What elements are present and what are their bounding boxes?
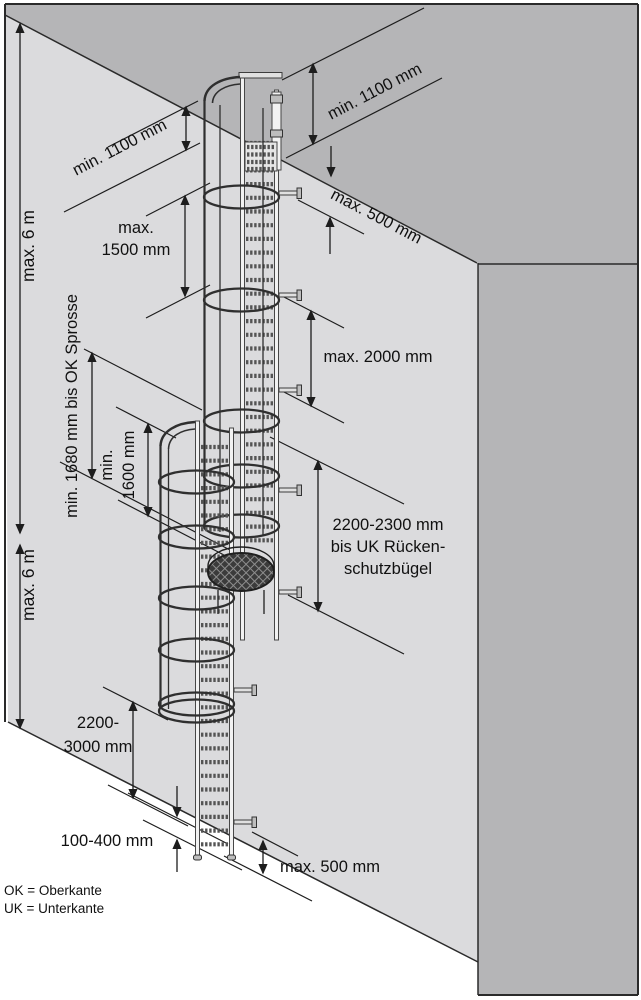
- label-exit-height-line2: 3000 mm: [64, 738, 133, 756]
- label-min1680: min. 1680 mm bis OK Sprosse: [63, 294, 81, 518]
- label-max500-bottom: max. 500 mm: [280, 858, 380, 876]
- label-max1500-line2: 1500 mm: [102, 241, 171, 259]
- walkthrough-cap: [239, 73, 282, 79]
- legend-uk: UK = Unterkante: [4, 901, 104, 916]
- label-max2000: max. 2000 mm: [323, 348, 432, 366]
- stile-foot: [228, 855, 236, 860]
- legend: OK = Oberkante UK = Unterkante: [4, 883, 104, 916]
- label-min1600-line1: min.: [98, 449, 116, 480]
- roof-exit-grate: [245, 142, 277, 171]
- label-max6-lower: max. 6 m: [18, 549, 38, 621]
- ladder-stile-right: [275, 90, 279, 640]
- label-min1600-line2: 1600 mm: [120, 431, 138, 500]
- diagram-canvas: max. 6 m max. 6 m min. 1100 mm min. 1100…: [0, 0, 641, 1000]
- label-max6-upper: max. 6 m: [18, 210, 38, 282]
- label-ground-gap: 100-400 mm: [61, 832, 154, 850]
- ladder-stile-right: [230, 428, 234, 857]
- label-max1500-line1: max.: [118, 219, 154, 237]
- stile-foot: [194, 855, 202, 860]
- platform-grate: [208, 553, 274, 591]
- label-cage-clearance-line2: bis UK Rücken-: [331, 538, 446, 556]
- label-cage-clearance-line3: schutzbügel: [344, 560, 432, 578]
- ladder-installation-diagram: max. 6 m max. 6 m min. 1100 mm min. 1100…: [0, 0, 641, 1000]
- label-cage-clearance-line1: 2200-2300 mm: [333, 516, 444, 534]
- label-exit-height-line1: 2200-: [77, 714, 119, 732]
- legend-ok: OK = Oberkante: [4, 883, 102, 898]
